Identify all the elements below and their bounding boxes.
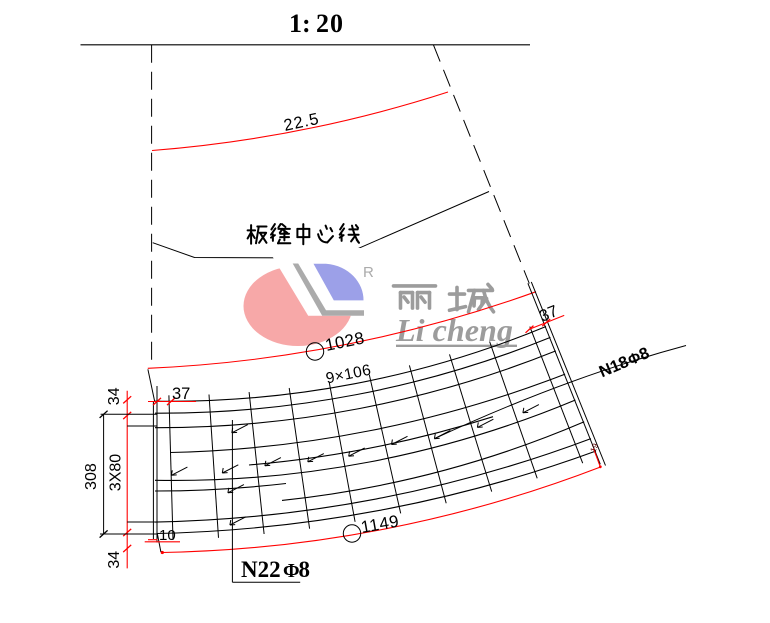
svg-text:20: 20	[316, 9, 344, 38]
svg-text:1:: 1:	[289, 9, 311, 38]
svg-text:308: 308	[83, 463, 100, 490]
svg-text:8: 8	[299, 557, 311, 582]
svg-text:N22: N22	[241, 557, 281, 582]
svg-text:R: R	[363, 264, 374, 281]
svg-text:22.5: 22.5	[282, 110, 321, 135]
svg-text:Φ: Φ	[283, 560, 300, 582]
svg-text:37: 37	[172, 385, 190, 403]
svg-text:34: 34	[106, 387, 123, 405]
svg-text:19: 19	[589, 442, 601, 454]
svg-text:37: 37	[537, 302, 561, 326]
svg-text:34: 34	[106, 551, 123, 569]
svg-text:1149: 1149	[359, 512, 400, 537]
svg-text:3X80: 3X80	[108, 454, 125, 491]
svg-text:9×106: 9×106	[324, 362, 373, 388]
